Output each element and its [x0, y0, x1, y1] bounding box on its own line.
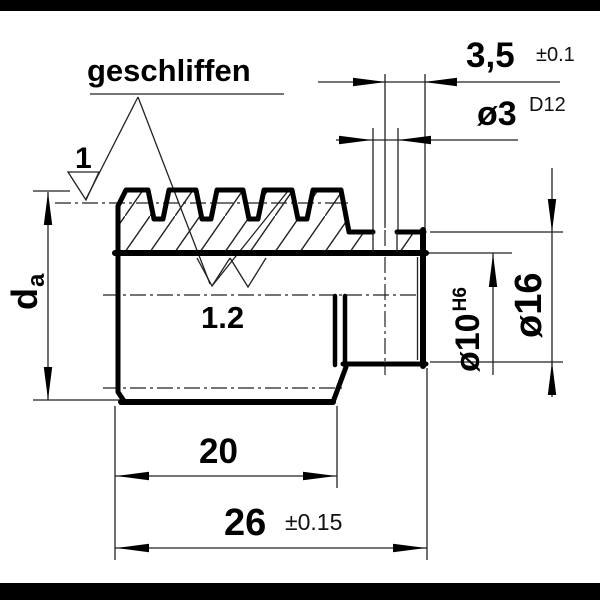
dim-bore-dia: ø10H6 — [449, 287, 487, 372]
dim-outer-dia-group: da — [4, 273, 50, 310]
top-border-bar — [0, 0, 600, 11]
dim-outer-dia: da — [4, 273, 50, 310]
dim-outer-dia-symbol: d — [4, 288, 45, 310]
dim-outer-dia-subscript: a — [23, 273, 50, 287]
technical-drawing-worm-shaft: geschliffen 1 1.2 3,5 ±0.1 ø3 D12 20 26 … — [0, 0, 600, 600]
dim-bore-fit: H6 — [450, 287, 471, 311]
dim-cross-hole-fit: D12 — [529, 94, 566, 116]
arrow-icon — [44, 367, 52, 400]
arrow-icon — [44, 192, 52, 225]
finish-triangle-icon — [68, 172, 99, 200]
dim-thread-length: 20 — [199, 432, 238, 471]
roughness-value-1: 1 — [75, 142, 92, 175]
drawing-texts: geschliffen 1 1.2 3,5 ±0.1 ø3 D12 20 26 … — [4, 36, 575, 544]
arrow-icon — [116, 472, 149, 480]
dim-hole-pos-tolerance: ±0.1 — [536, 44, 575, 66]
arrow-icon — [353, 78, 386, 86]
dim-cross-hole-dia: ø3 — [477, 95, 517, 133]
body-corner-chamfer — [333, 367, 346, 402]
arrow-icon — [339, 136, 372, 144]
dim-total-length: 26 — [224, 502, 266, 544]
roughness-value-1-2: 1.2 — [201, 300, 244, 335]
arrow-icon — [489, 254, 497, 287]
finish-check-icon — [230, 258, 266, 287]
dim-hole-pos-value: 3,5 — [466, 36, 515, 75]
dim-bore-dia-value: ø10 — [449, 313, 487, 372]
arrow-icon — [303, 472, 336, 480]
dim-total-length-tolerance: ±0.15 — [285, 509, 342, 535]
arrow-icon — [548, 199, 556, 232]
arrow-icon — [393, 544, 426, 552]
dim-bore-dia-group: ø10H6 — [449, 287, 487, 372]
bottom-border-bar — [0, 583, 600, 600]
arrow-icon — [116, 544, 149, 552]
arrow-icon — [398, 136, 431, 144]
dim-boss-dia: ø16 — [508, 273, 550, 338]
surface-finish-label: geschliffen — [87, 53, 251, 88]
arrow-icon — [424, 78, 457, 86]
arrow-icon — [548, 362, 556, 395]
dim-boss-dia-group: ø16 — [508, 273, 550, 338]
